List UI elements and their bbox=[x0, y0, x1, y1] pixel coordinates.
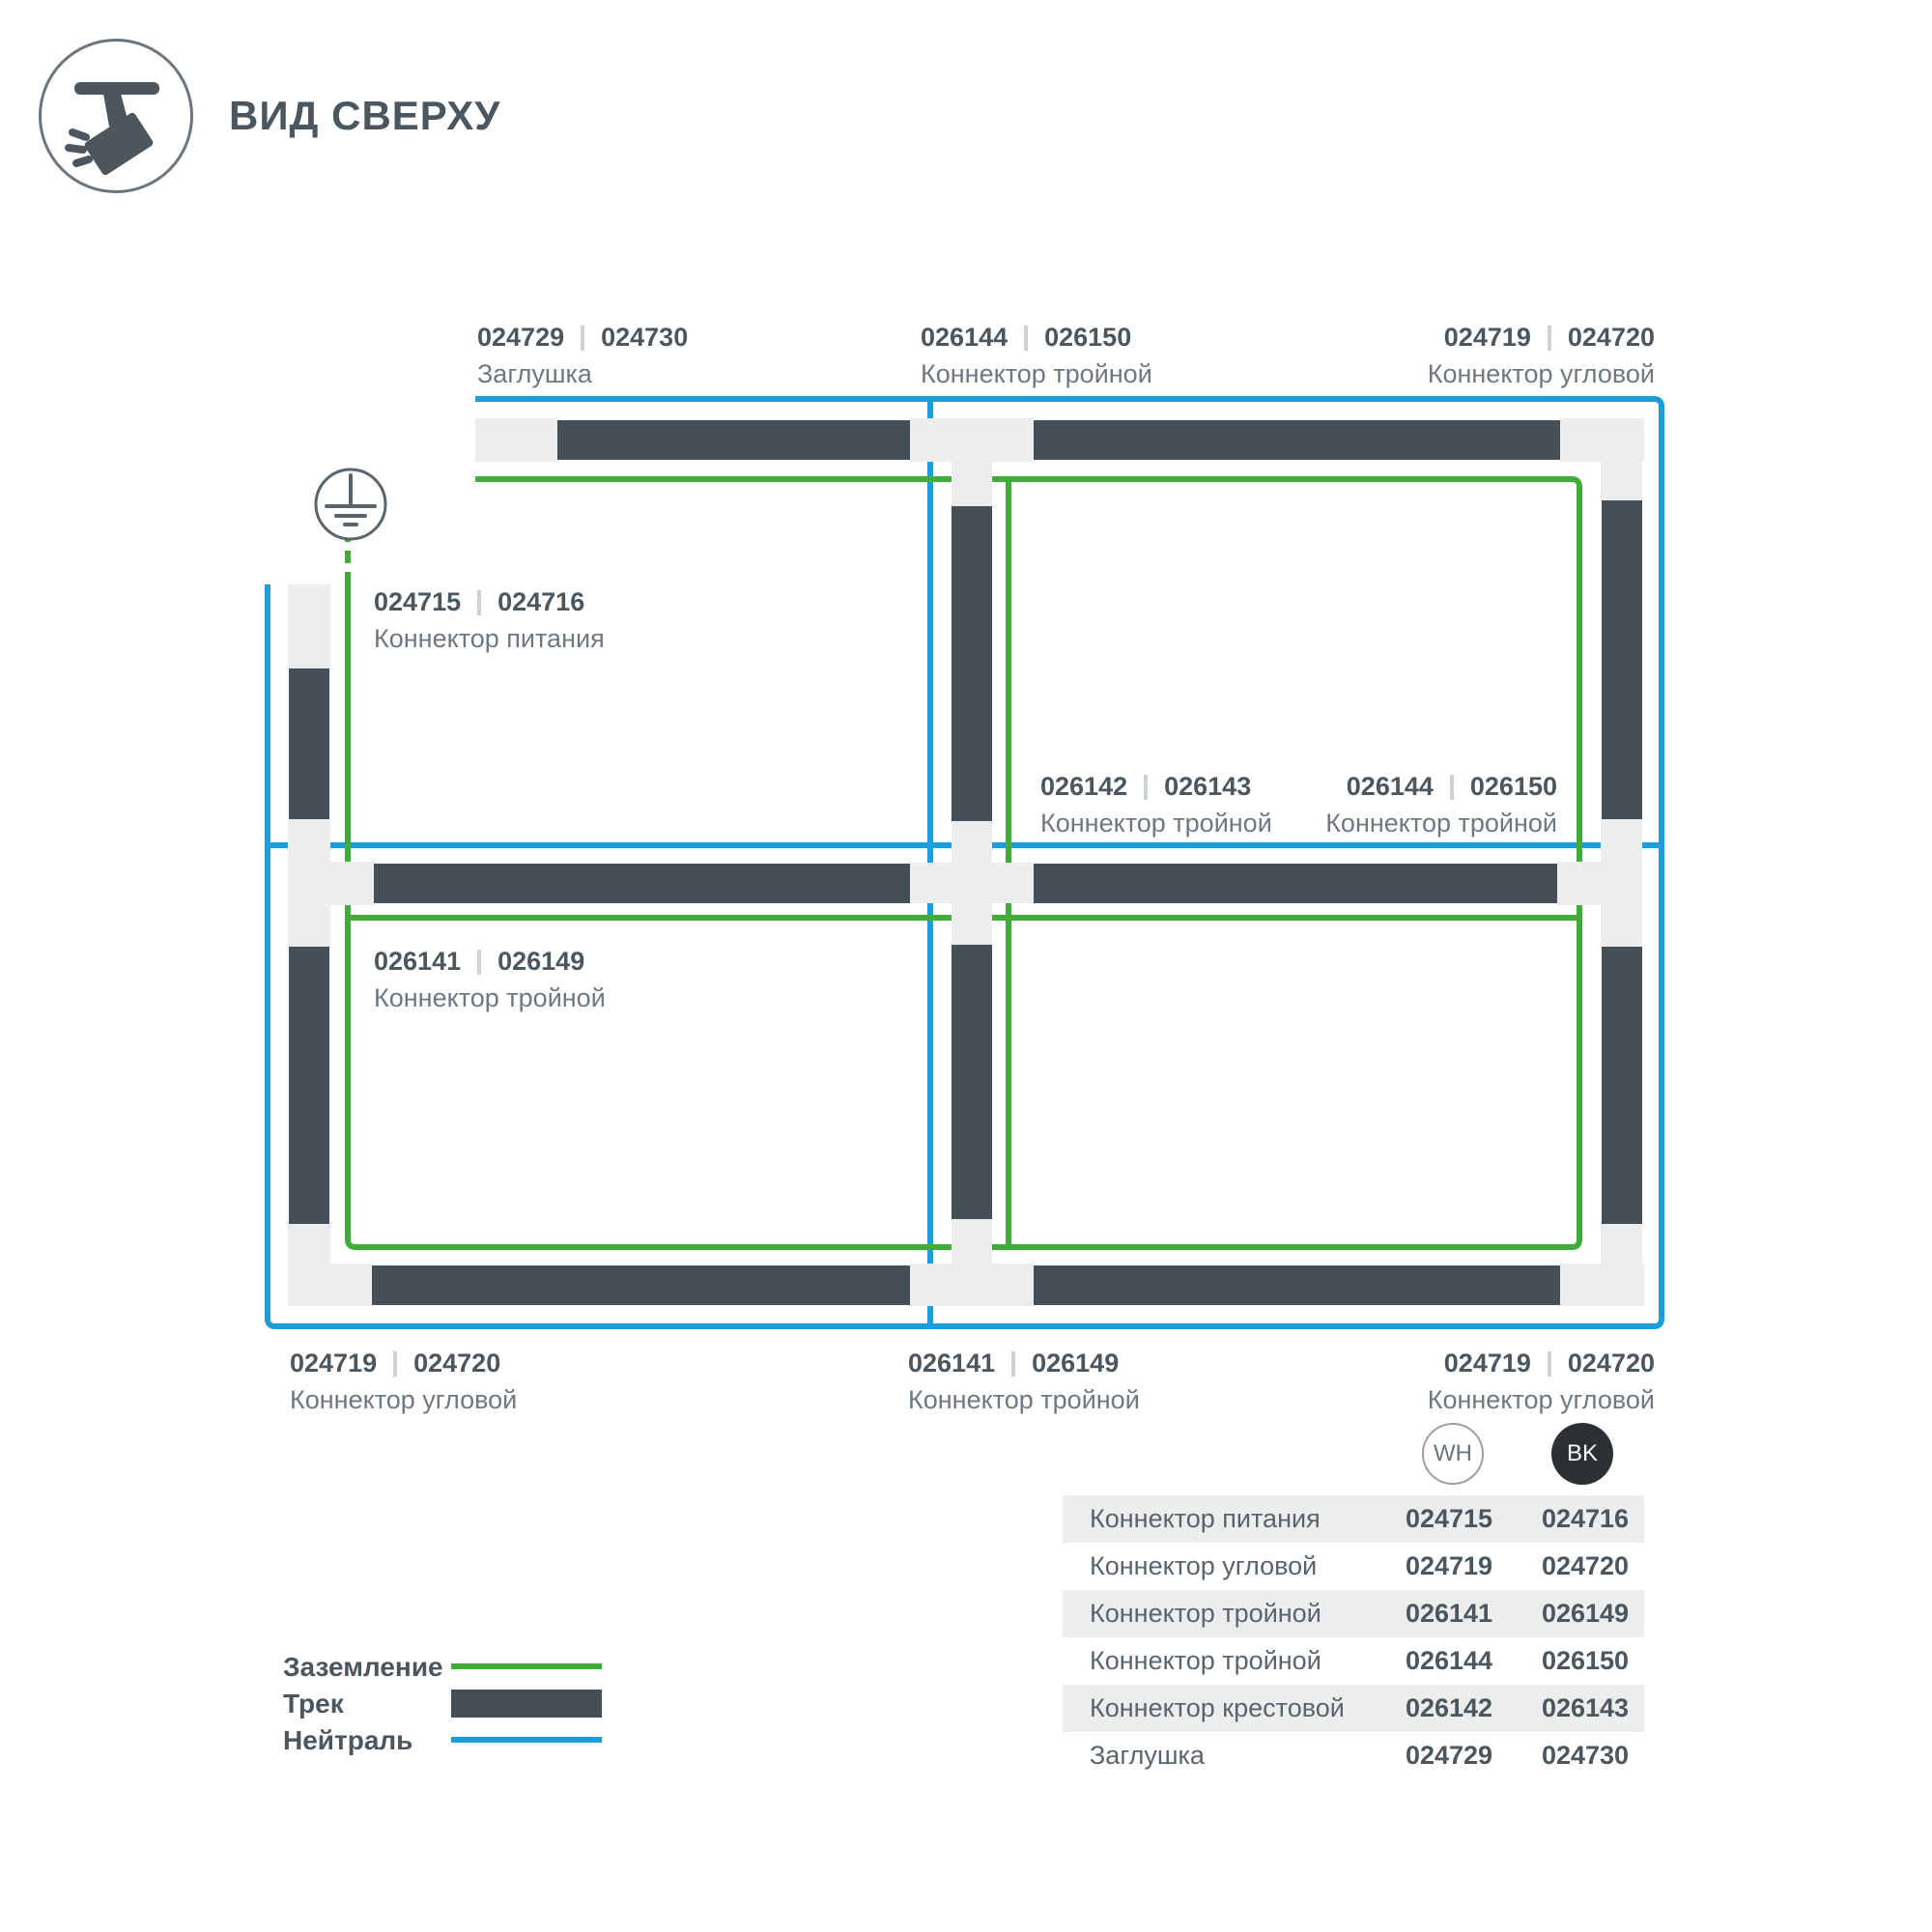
part-number-wh: 024715 bbox=[374, 587, 461, 617]
separator bbox=[1144, 775, 1148, 800]
part-numbers: 026144026150 bbox=[1325, 772, 1557, 802]
part-name-cell: Коннектор тройной bbox=[1063, 1646, 1372, 1676]
separator bbox=[1548, 1351, 1551, 1377]
wh-code-cell: 026142 bbox=[1372, 1693, 1526, 1723]
track-segment bbox=[952, 506, 992, 821]
corner-connector-top-right-v bbox=[1601, 418, 1642, 500]
separator bbox=[477, 950, 481, 975]
part-label-corner-bottom-left: 024719024720 Коннектор угловой bbox=[290, 1349, 517, 1415]
table-row: Коннектор угловой 024719 024720 bbox=[1063, 1543, 1644, 1590]
separator bbox=[393, 1351, 397, 1377]
t-connector-bottom-block bbox=[910, 1264, 1034, 1306]
wh-code-cell: 026144 bbox=[1372, 1646, 1526, 1676]
part-name: Коннектор угловой bbox=[1428, 359, 1655, 389]
part-name: Коннектор питания bbox=[374, 624, 605, 654]
part-numbers: 026141026149 bbox=[908, 1349, 1140, 1378]
part-name: Коннектор тройной bbox=[1325, 809, 1557, 838]
part-label-end-cap: 024729024730 Заглушка bbox=[477, 323, 688, 389]
separator bbox=[1450, 775, 1454, 800]
part-number-wh: 026141 bbox=[908, 1349, 995, 1378]
part-name-cell: Коннектор тройной bbox=[1063, 1599, 1372, 1629]
part-name: Заглушка bbox=[477, 359, 688, 389]
part-name: Коннектор угловой bbox=[290, 1385, 517, 1415]
legend-label-ground: Заземление bbox=[283, 1652, 443, 1683]
part-numbers: 024729024730 bbox=[477, 323, 688, 353]
part-numbers: 024719024720 bbox=[1428, 1349, 1655, 1378]
separator bbox=[1548, 326, 1551, 351]
bk-code-cell: 026150 bbox=[1526, 1646, 1644, 1676]
wh-code-cell: 024729 bbox=[1372, 1741, 1526, 1771]
parts-table: Коннектор питания 024715 024716 Коннекто… bbox=[1063, 1495, 1644, 1779]
track-segment bbox=[289, 947, 329, 1224]
variant-badge-black: BK bbox=[1551, 1423, 1613, 1485]
track-segment bbox=[1602, 500, 1642, 819]
part-number-bk: 024730 bbox=[601, 323, 688, 353]
bk-code-cell: 024716 bbox=[1526, 1504, 1644, 1534]
bk-code-cell: 024720 bbox=[1526, 1551, 1644, 1581]
bk-code-cell: 026143 bbox=[1526, 1693, 1644, 1723]
part-number-bk: 026149 bbox=[1032, 1349, 1119, 1378]
legend-label-neutral: Нейтраль bbox=[283, 1725, 412, 1756]
t-connector-left-arm bbox=[330, 862, 375, 905]
table-row: Заглушка 024729 024730 bbox=[1063, 1732, 1644, 1779]
part-number-wh: 024729 bbox=[477, 323, 564, 353]
part-name: Коннектор тройной bbox=[921, 359, 1152, 389]
wh-code-cell: 026141 bbox=[1372, 1599, 1526, 1629]
track-segment bbox=[374, 864, 910, 903]
part-number-wh: 024719 bbox=[1444, 1349, 1531, 1378]
legend-label-track: Трек bbox=[283, 1689, 344, 1719]
cross-connector-horizontal bbox=[910, 863, 1034, 903]
part-numbers: 024719024720 bbox=[290, 1349, 517, 1378]
separator bbox=[477, 590, 481, 615]
legend-swatch-track bbox=[451, 1690, 602, 1718]
track-segment bbox=[1602, 947, 1642, 1224]
part-numbers: 026141026149 bbox=[374, 947, 606, 977]
table-row: Коннектор питания 024715 024716 bbox=[1063, 1495, 1644, 1543]
wh-code-cell: 024719 bbox=[1372, 1551, 1526, 1581]
t-connector-right-arm bbox=[1557, 862, 1602, 905]
part-label-corner-top-right: 024719024720 Коннектор угловой bbox=[1428, 323, 1655, 389]
wh-code-cell: 024715 bbox=[1372, 1504, 1526, 1534]
separator bbox=[1024, 326, 1028, 351]
table-row: Коннектор тройной 026144 026150 bbox=[1063, 1637, 1644, 1685]
separator bbox=[1011, 1351, 1015, 1377]
track-segment bbox=[289, 668, 329, 819]
part-number-wh: 026144 bbox=[1347, 772, 1434, 802]
page: ВИД СВЕРХУ bbox=[0, 0, 1932, 1932]
part-numbers: 024715024716 bbox=[374, 587, 605, 617]
part-number-bk: 026143 bbox=[1164, 772, 1251, 802]
t-connector-top-block bbox=[910, 418, 1034, 462]
t-connector-right-block bbox=[1601, 819, 1642, 947]
part-number-bk: 024720 bbox=[1568, 1349, 1655, 1378]
part-label-cross-connector: 026142026143 Коннектор тройной bbox=[1040, 772, 1272, 838]
part-number-bk: 024720 bbox=[1568, 323, 1655, 353]
part-name-cell: Коннектор угловой bbox=[1063, 1551, 1372, 1581]
corner-connector-bottom-right-h bbox=[1560, 1264, 1644, 1306]
t-connector-left-block bbox=[288, 819, 330, 947]
bk-code-cell: 026149 bbox=[1526, 1599, 1644, 1629]
track-segment bbox=[952, 945, 992, 1219]
legend-swatch-neutral bbox=[451, 1737, 602, 1743]
part-number-wh: 026141 bbox=[374, 947, 461, 977]
separator bbox=[581, 326, 584, 351]
part-number-bk: 026150 bbox=[1044, 323, 1131, 353]
part-name-cell: Коннектор питания bbox=[1063, 1504, 1372, 1534]
power-connector-block bbox=[288, 584, 330, 669]
part-label-t-connector-left: 026141026149 Коннектор тройной bbox=[374, 947, 606, 1013]
variant-badge-white: WH bbox=[1422, 1423, 1484, 1485]
part-name-cell: Коннектор крестовой bbox=[1063, 1693, 1372, 1723]
part-name: Коннектор угловой bbox=[1428, 1385, 1655, 1415]
bk-code-cell: 024730 bbox=[1526, 1741, 1644, 1771]
t-connector-bottom-stem bbox=[952, 1219, 992, 1264]
track-segment bbox=[1034, 1265, 1560, 1305]
part-number-bk: 024716 bbox=[497, 587, 584, 617]
part-name: Коннектор тройной bbox=[1040, 809, 1272, 838]
part-number-wh: 024719 bbox=[1444, 323, 1531, 353]
track-segment bbox=[557, 420, 910, 460]
ground-symbol-icon bbox=[312, 466, 389, 543]
part-label-power-connector: 024715024716 Коннектор питания bbox=[374, 587, 605, 654]
part-label-t-connector-bottom: 026141026149 Коннектор тройной bbox=[908, 1349, 1140, 1415]
part-label-corner-bottom-right: 024719024720 Коннектор угловой bbox=[1428, 1349, 1655, 1415]
track-segment bbox=[1034, 420, 1560, 460]
part-label-t-connector-top: 026144026150 Коннектор тройной bbox=[921, 323, 1152, 389]
corner-connector-bottom-left-h bbox=[288, 1264, 372, 1306]
end-cap-block bbox=[475, 418, 557, 462]
part-number-wh: 026144 bbox=[921, 323, 1008, 353]
table-row: Коннектор крестовой 026142 026143 bbox=[1063, 1685, 1644, 1732]
part-number-bk: 026149 bbox=[497, 947, 584, 977]
part-number-bk: 024720 bbox=[413, 1349, 500, 1378]
part-numbers: 026142026143 bbox=[1040, 772, 1272, 802]
part-numbers: 026144026150 bbox=[921, 323, 1152, 353]
part-number-wh: 026142 bbox=[1040, 772, 1127, 802]
part-label-t-connector-right: 026144026150 Коннектор тройной bbox=[1325, 772, 1557, 838]
part-name: Коннектор тройной bbox=[908, 1385, 1140, 1415]
track-segment bbox=[372, 1265, 910, 1305]
part-numbers: 024719024720 bbox=[1428, 323, 1655, 353]
track-segment bbox=[1034, 864, 1557, 903]
part-number-bk: 026150 bbox=[1470, 772, 1557, 802]
table-row: Коннектор тройной 026141 026149 bbox=[1063, 1590, 1644, 1637]
legend-swatch-ground bbox=[451, 1663, 602, 1669]
part-name: Коннектор тройной bbox=[374, 983, 606, 1013]
t-connector-top-stem bbox=[952, 462, 992, 506]
part-number-wh: 024719 bbox=[290, 1349, 377, 1378]
part-name-cell: Заглушка bbox=[1063, 1741, 1372, 1771]
